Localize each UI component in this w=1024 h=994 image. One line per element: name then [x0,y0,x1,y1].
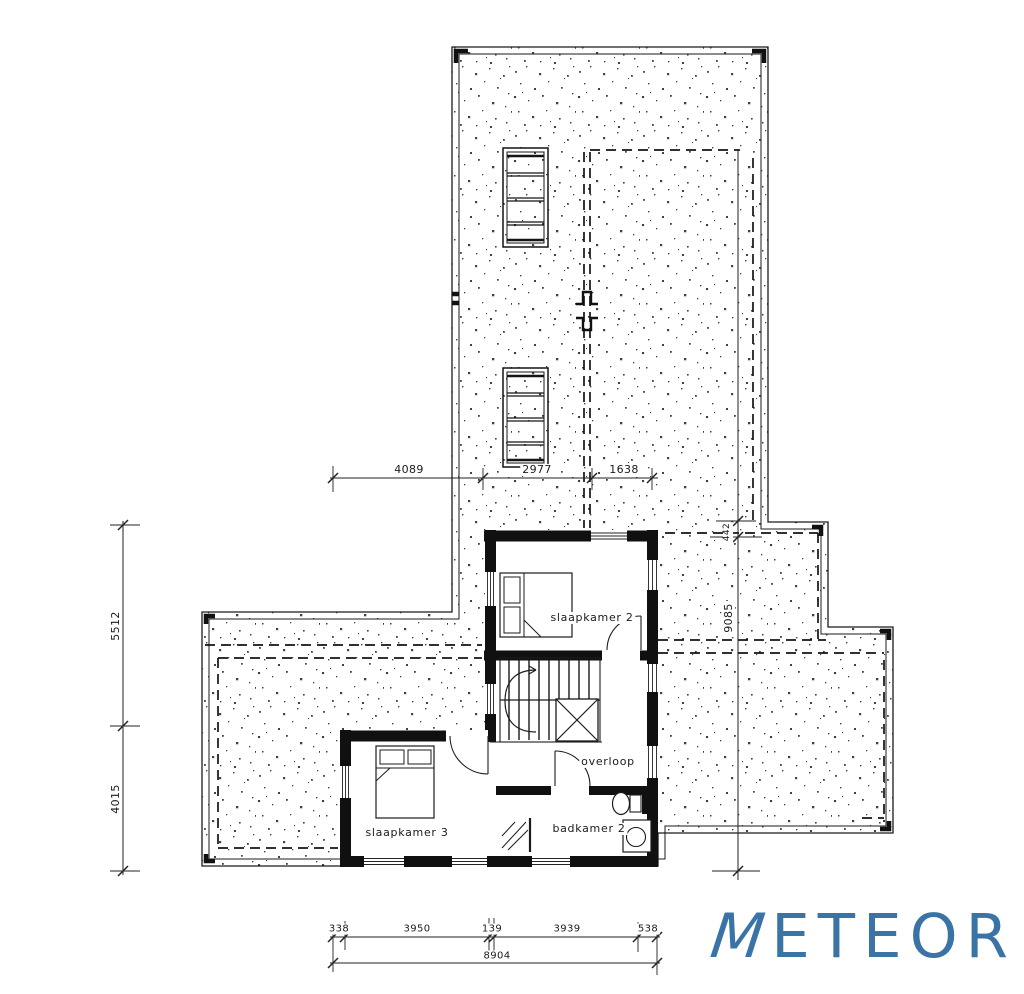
room-label-badkamer-2: badkamer 2 [550,823,627,835]
dimension-label-top-3: 1638 [607,464,641,476]
room-label-slaapkamer-3: slaapkamer 3 [363,827,450,839]
room-label-slaapkamer-2: slaapkamer 2 [548,612,635,624]
toilet-icon [613,793,642,815]
logo-letter-m: M [701,906,781,967]
dimension-label-bottom-2: 3950 [401,924,432,935]
dimension-label-bottom-4: 3939 [551,924,582,935]
dimension-label-bottom-3: 139 [480,924,504,935]
logo-meteor: METEOR [694,896,1016,976]
room-label-overloop: overloop [579,756,637,768]
bed-slaapkamer-3 [376,746,434,818]
page: { "sheet": { "kind": "first floor plan (… [0,0,1024,994]
dimension-label-right-2: 9085 [723,601,735,635]
floorplan-sheet: 4089 2977 1638 5512 4015 442 9085 338 39… [0,0,1024,994]
dimension-label-top-1: 4089 [392,464,426,476]
dimension-label-bottom-5: 538 [636,924,660,935]
dimension-label-top-2: 2977 [520,464,554,476]
dimension-label-left-2: 4015 [110,782,122,816]
dimension-label-left-1: 5512 [110,609,122,643]
bed-slaapkamer-2 [500,573,572,637]
floorplan-drawing [0,0,1024,994]
dimension-label-bottom-1: 338 [327,924,351,935]
dimension-label-bottom-total: 8904 [481,951,512,962]
logo-rest: ETEOR [771,906,1016,967]
dimension-label-right-1: 442 [723,522,733,542]
